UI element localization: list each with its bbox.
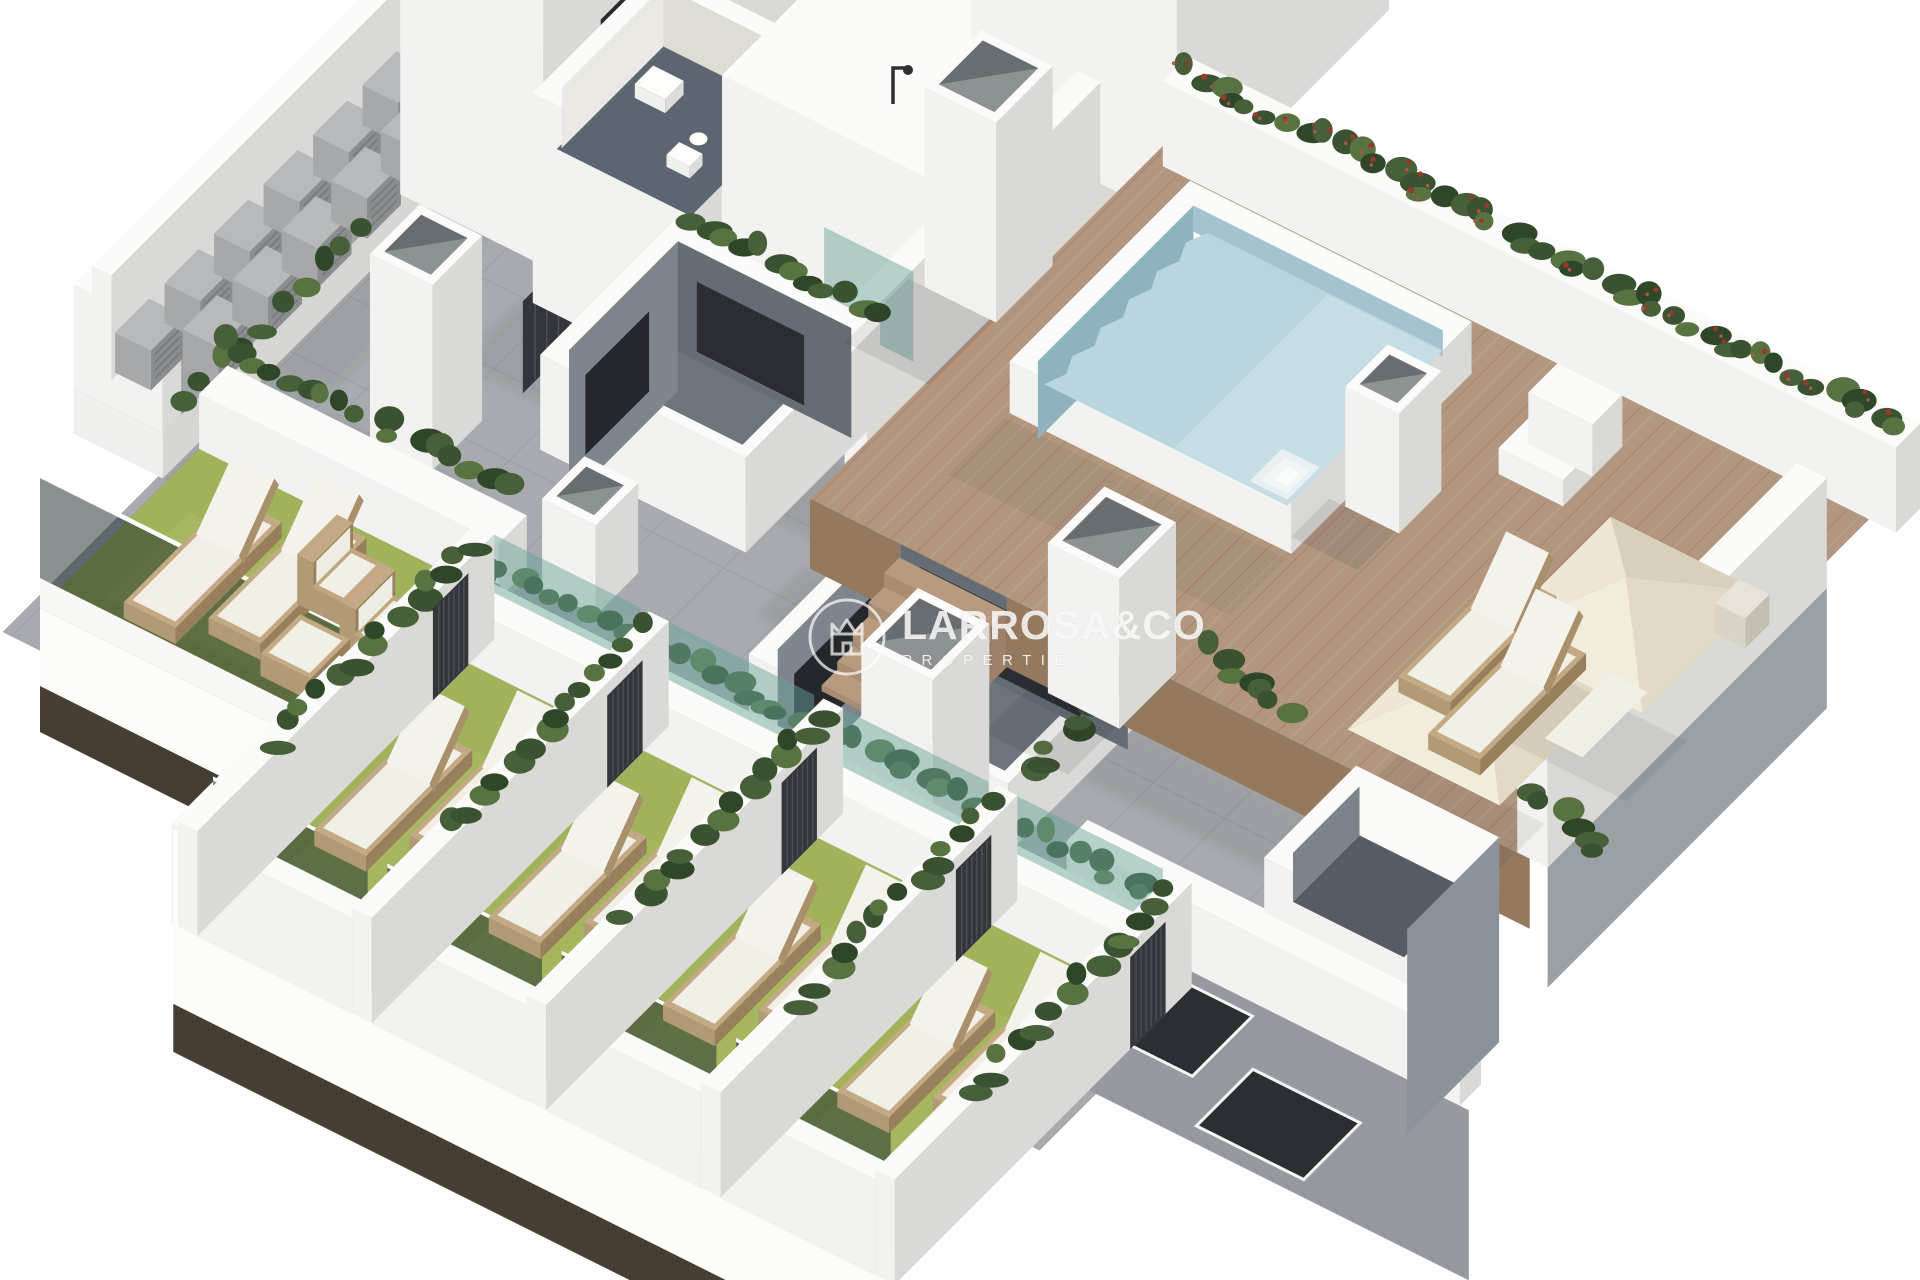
rooftop-floorplan-render: LARROSA&CO PROPERTIES xyxy=(0,0,1920,1280)
isometric-scene xyxy=(0,0,1920,1280)
